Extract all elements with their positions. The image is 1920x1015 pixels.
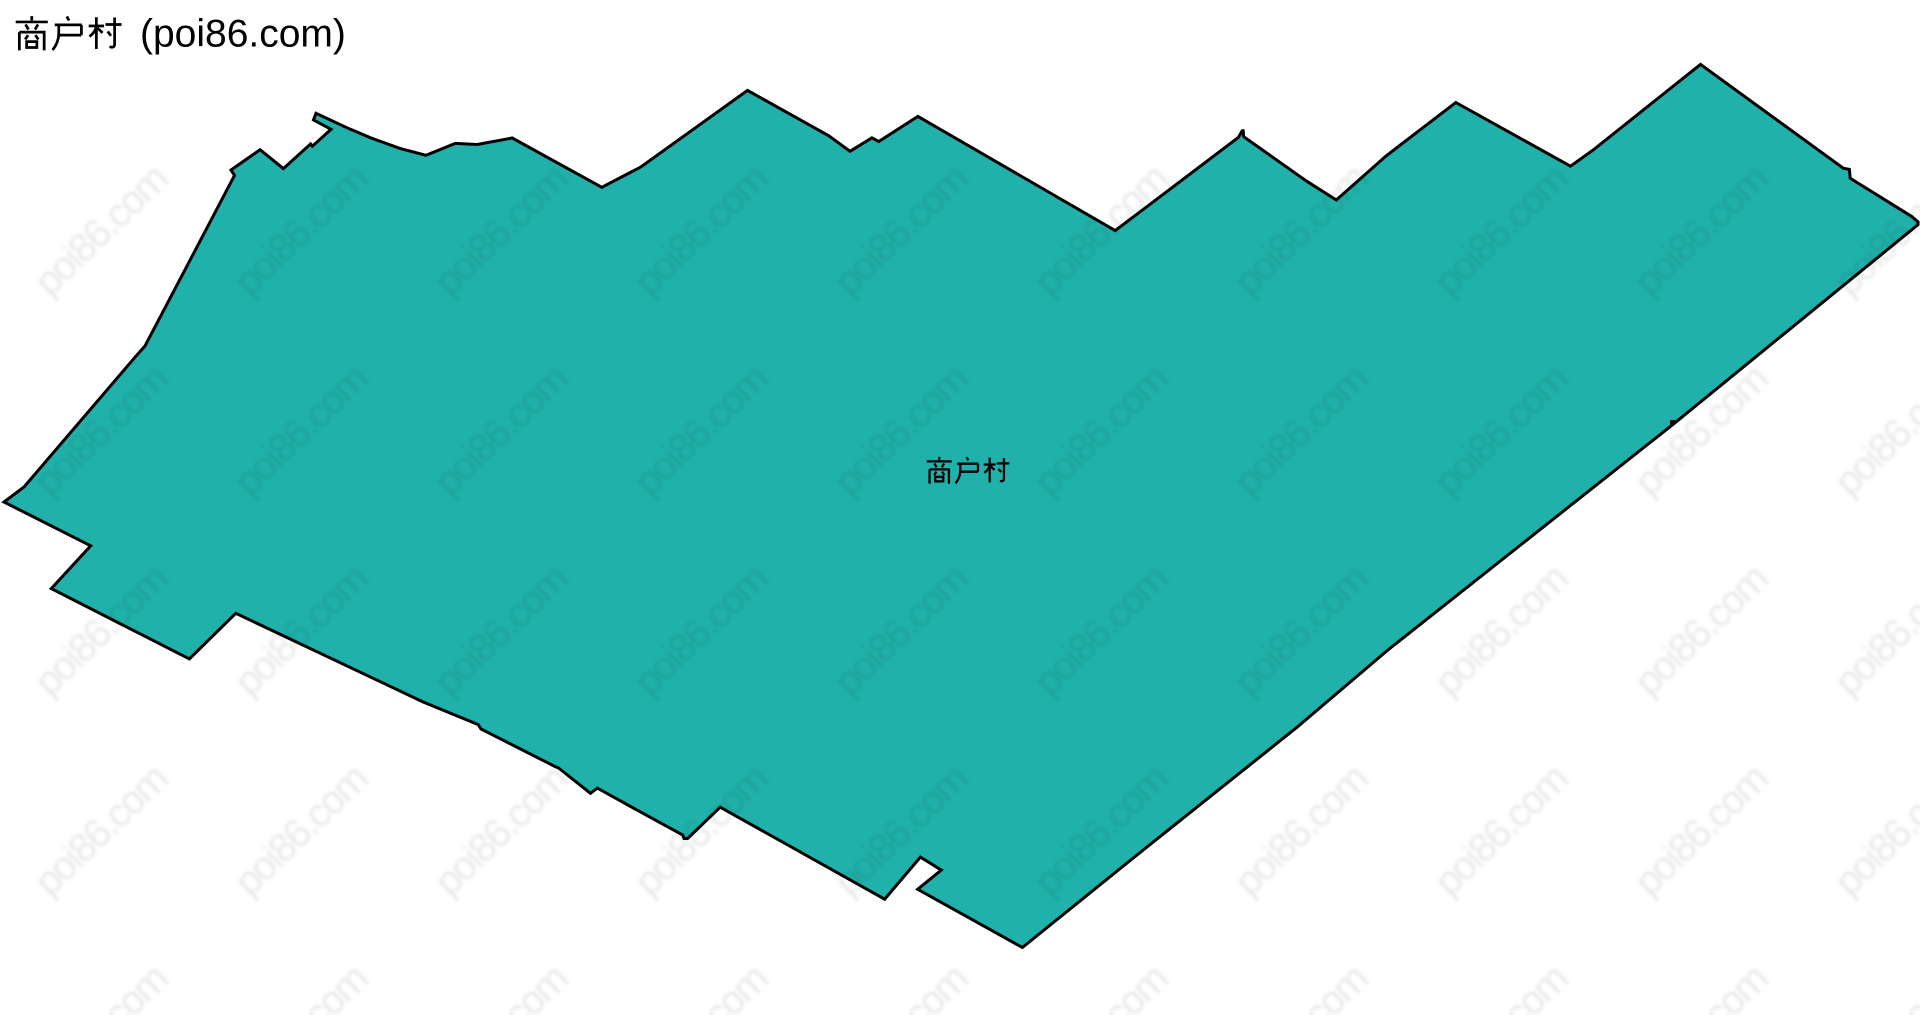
svg-text:poi86.com: poi86.com (226, 957, 376, 1015)
svg-text:poi86.com: poi86.com (1826, 557, 1920, 704)
svg-text:poi86.com: poi86.com (1826, 757, 1920, 904)
svg-text:poi86.com: poi86.com (1426, 957, 1576, 1015)
svg-text:poi86.com: poi86.com (26, 957, 176, 1015)
svg-text:poi86.com: poi86.com (826, 957, 976, 1015)
svg-text:poi86.com: poi86.com (1826, 957, 1920, 1015)
svg-text:poi86.com: poi86.com (626, 957, 776, 1015)
svg-text:poi86.com: poi86.com (426, 957, 576, 1015)
svg-text:poi86.com: poi86.com (426, 757, 576, 904)
svg-text:poi86.com: poi86.com (1626, 757, 1776, 904)
svg-text:poi86.com: poi86.com (26, 157, 176, 304)
svg-text:poi86.com: poi86.com (1026, 957, 1176, 1015)
svg-text:(poi86.com): (poi86.com) (140, 13, 346, 56)
svg-text:poi86.com: poi86.com (1626, 957, 1776, 1015)
svg-text:poi86.com: poi86.com (1826, 357, 1920, 504)
svg-text:poi86.com: poi86.com (1626, 557, 1776, 704)
svg-text:poi86.com: poi86.com (1226, 757, 1376, 904)
svg-text:poi86.com: poi86.com (226, 757, 376, 904)
svg-text:poi86.com: poi86.com (26, 757, 176, 904)
svg-text:poi86.com: poi86.com (1226, 957, 1376, 1015)
svg-text:poi86.com: poi86.com (1426, 757, 1576, 904)
